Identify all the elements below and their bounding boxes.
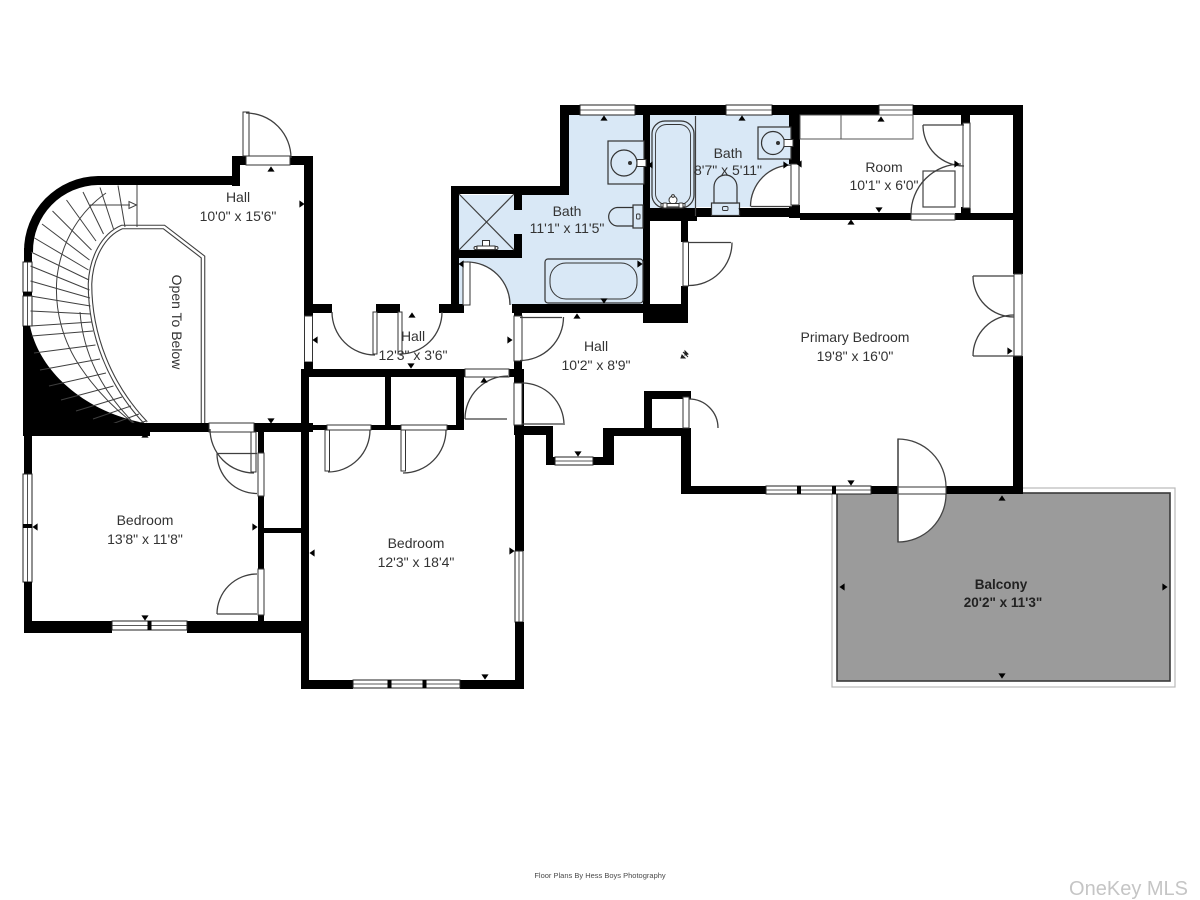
svg-text:Room: Room [865,159,902,175]
svg-text:Primary Bedroom: Primary Bedroom [801,329,910,345]
svg-text:Hall: Hall [401,328,425,344]
svg-text:10'2" x 8'9": 10'2" x 8'9" [562,357,631,373]
svg-text:10'0" x 15'6": 10'0" x 15'6" [200,208,277,224]
svg-text:11'1" x 11'5": 11'1" x 11'5" [530,220,605,236]
svg-text:19'8" x 16'0": 19'8" x 16'0" [817,348,894,364]
svg-text:20'2" x 11'3": 20'2" x 11'3" [964,595,1043,610]
svg-text:Floor Plans By Hess Boys Photo: Floor Plans By Hess Boys Photography [534,871,666,880]
svg-text:10'1" x 6'0": 10'1" x 6'0" [850,177,919,193]
svg-text:Balcony: Balcony [975,577,1028,592]
svg-text:12'3" x 3'6": 12'3" x 3'6" [379,347,448,363]
svg-text:Hall: Hall [226,189,250,205]
svg-text:Bath: Bath [714,145,743,161]
svg-text:Bath: Bath [553,203,582,219]
svg-text:8'7" x 5'11": 8'7" x 5'11" [694,162,762,178]
svg-text:Bedroom: Bedroom [117,512,174,528]
svg-text:Bedroom: Bedroom [388,535,445,551]
svg-text:Hall: Hall [584,338,608,354]
svg-text:13'8" x 11'8": 13'8" x 11'8" [107,531,183,547]
svg-text:12'3" x 18'4": 12'3" x 18'4" [378,554,455,570]
svg-text:Open To Below: Open To Below [169,275,185,371]
svg-text:OneKey MLS: OneKey MLS [1069,878,1188,900]
